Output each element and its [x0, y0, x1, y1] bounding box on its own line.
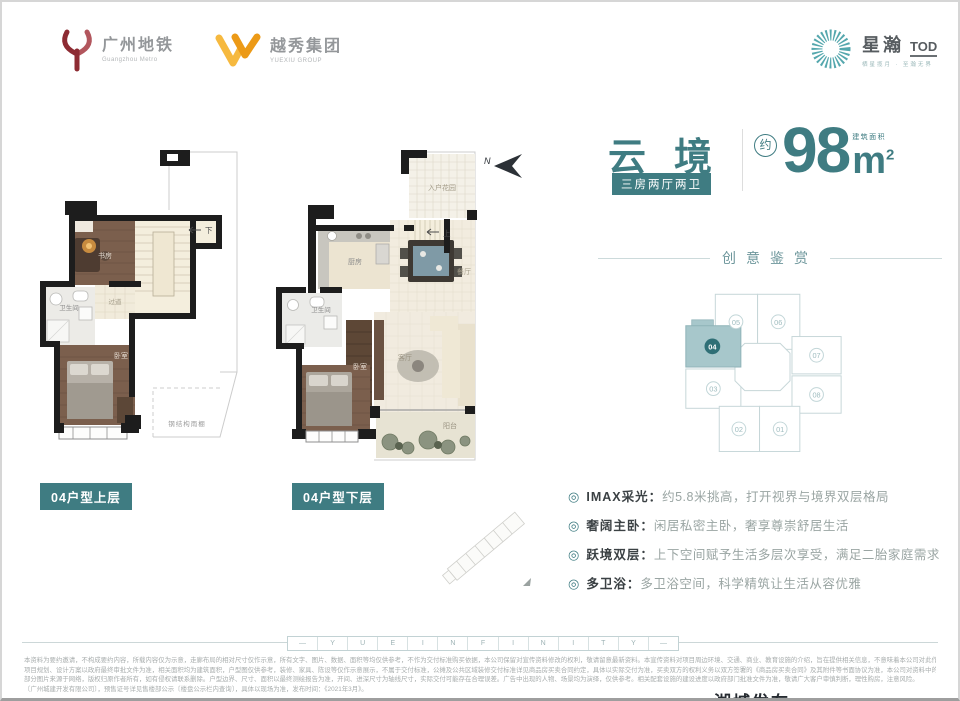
spec-badge: 三房两厅两卫 — [612, 173, 711, 195]
feature-item: ◎ 跃境双层： 上下空间赋予生活多层次享受，满足二胎家庭需求 — [568, 544, 940, 563]
band-letter: E — [377, 637, 407, 650]
feature-item: ◎ 多卫浴： 多卫浴空间，科学精筑让生活从容优雅 — [568, 573, 940, 592]
feature-list: ◎ IMAX采光： 约5.8米挑高，打开视界与境界双层格局 ◎ 奢阔主卧： 闲居… — [568, 486, 940, 602]
disclaimer-line: 〔广州城建开发有限公司〕，预售证号详见售楼部公示〔楼盘公示栏内查询〕，具体以现场… — [24, 685, 936, 695]
canopy-label: 钢结构雨棚 — [168, 419, 206, 428]
brochure-page: 广州地铁 Guangzhou Metro 越秀集团 YUEXIU GROUP 星… — [0, 0, 960, 701]
band-dash: — — [288, 637, 317, 650]
feature-desc: 多卫浴空间，科学精筑让生活从容优雅 — [640, 573, 861, 592]
brand-tagline: 栖星揽月 · 至瀚无界 — [862, 60, 937, 68]
guangzhou-metro-icon — [60, 28, 94, 72]
room-label-bath: 卫生间 — [311, 305, 331, 314]
room-label-bedroom: 卧室 — [353, 362, 367, 371]
svg-text:N: N — [484, 156, 491, 166]
heading-text: 创意鉴赏 — [722, 248, 818, 268]
band-letter: F — [467, 637, 497, 650]
stairs-direction-label: 下 — [205, 226, 213, 235]
yuexiu-logo: 越秀集团 YUEXIU GROUP — [214, 32, 342, 70]
keyplan-unit-label: 05 — [732, 318, 740, 327]
disclaimer-line: 本资料为要约邀请，不构成要约内容，所载内容仅为示意，走廊布局的相对尺寸仅作示意，… — [24, 656, 936, 666]
yuexiu-icon — [214, 32, 262, 70]
band-letter: N — [437, 637, 467, 650]
band-letter: N — [528, 637, 558, 650]
area-unit: m2 — [852, 142, 894, 180]
feature-bullet-icon: ◎ — [568, 547, 579, 563]
keyplan-unit-label: 07 — [812, 351, 820, 360]
approx-circle: 约 — [754, 134, 777, 157]
feature-bullet-icon: ◎ — [568, 518, 579, 534]
bottom-watermark: 湖城发布 — [714, 688, 790, 701]
stairs-direction-label: 上 — [443, 229, 451, 238]
feature-desc: 约5.8米挑高，打开视界与境界双层格局 — [662, 486, 889, 505]
band-letter: I — [558, 637, 588, 650]
heading-rule-left — [598, 258, 710, 259]
band-letter: Y — [618, 637, 648, 650]
keyplan-unit-label: 01 — [776, 425, 784, 434]
xinghan-tod-logo: 星瀚 TOD 栖星揽月 · 至瀚无界 — [808, 26, 937, 72]
brand-suffix: TOD — [910, 39, 937, 57]
heading-rule-right — [830, 258, 942, 259]
feature-title: 奢阔主卧： — [586, 515, 654, 534]
yuexiu-name-en: YUEXIU GROUP — [270, 58, 342, 64]
brand-name: 星瀚 — [862, 31, 904, 57]
feature-title: IMAX采光： — [586, 486, 662, 505]
section-heading: 创意鉴赏 — [598, 248, 942, 268]
feature-bullet-icon: ◎ — [568, 576, 579, 592]
upper-level-badge: 04户型上层 — [40, 483, 132, 510]
room-label-garden: 入户花园 — [428, 183, 456, 192]
lower-level-badge: 04户型下层 — [292, 483, 384, 510]
metro-name-en: Guangzhou Metro — [102, 57, 174, 63]
room-label-living: 客厅 — [398, 353, 412, 362]
room-label-corridor: 过道 — [109, 297, 123, 306]
area-figure: 约 98 建筑面积 m2 — [754, 120, 894, 181]
room-label-study: 书房 — [98, 251, 112, 260]
band-letter: Y — [317, 637, 347, 650]
guangzhou-metro-logo: 广州地铁 Guangzhou Metro — [60, 28, 174, 72]
room-label-bedroom: 卧室 — [114, 351, 128, 360]
metro-name: 广州地铁 — [102, 37, 174, 55]
brand-starburst-icon — [808, 26, 854, 72]
room-label-balcony: 阳台 — [443, 421, 457, 430]
band-dash: — — [648, 637, 678, 650]
yuexiu-name: 越秀集团 — [270, 38, 342, 56]
inset-north-arrow-icon — [523, 578, 531, 586]
feature-bullet-icon: ◎ — [568, 489, 579, 505]
keyplan-unit-label: 02 — [735, 425, 743, 434]
band-letter: I — [407, 637, 437, 650]
disclaimer-line: 部分图片来源于网络，版权归原作者所有，如有侵权请联系删除。户型边界、尺寸、面积以… — [24, 675, 936, 685]
band-letter: T — [588, 637, 618, 650]
title-divider — [742, 129, 743, 191]
band-letter: I — [498, 637, 528, 650]
site-plan-inset — [434, 498, 540, 594]
floorplan-upper-level: 书房 卫生间 过道 卧室 下 钢结构雨棚 — [17, 142, 242, 472]
keyplan-highlight-label: 04 — [708, 342, 717, 351]
building-key-plan: 04 05 06 07 08 03 02 01 — [676, 284, 848, 452]
feature-item: ◎ 奢阔主卧： 闲居私密主卧，奢享尊崇舒居生活 — [568, 515, 940, 534]
keyplan-unit-label: 08 — [812, 390, 820, 399]
floorplan-lower-level: 入户花园 厨房 餐厅 卫生间 客厅 卧室 阳台 上 N — [262, 140, 542, 475]
keyplan-unit-label: 03 — [709, 385, 717, 394]
feature-title: 跃境双层： — [586, 544, 654, 563]
room-label-bath: 卫生间 — [59, 303, 79, 312]
legal-disclaimer: 本资料为要约邀请，不构成要约内容，所载内容仅为示意，走廊布局的相对尺寸仅作示意，… — [24, 656, 936, 695]
area-number: 98 — [782, 120, 849, 181]
yue-infinity-band: — Y U E I N F I N I T Y — — [287, 636, 679, 651]
feature-desc: 闲居私密主卧，奢享尊崇舒居生活 — [654, 515, 849, 534]
feature-item: ◎ IMAX采光： 约5.8米挑高，打开视界与境界双层格局 — [568, 486, 940, 505]
band-letter: U — [347, 637, 377, 650]
disclaimer-line: 项目规划、设计方案以政府最终审批文件为准，相关面积均为建筑面积，户型图仅供参考，… — [24, 666, 936, 676]
feature-desc: 上下空间赋予生活多层次享受，满足二胎家庭需求 — [654, 544, 940, 563]
feature-title: 多卫浴： — [586, 573, 640, 592]
room-label-dining: 餐厅 — [457, 267, 471, 276]
keyplan-unit-label: 06 — [774, 318, 782, 327]
room-label-kitchen: 厨房 — [348, 257, 362, 266]
north-arrow-icon: N — [484, 154, 522, 178]
